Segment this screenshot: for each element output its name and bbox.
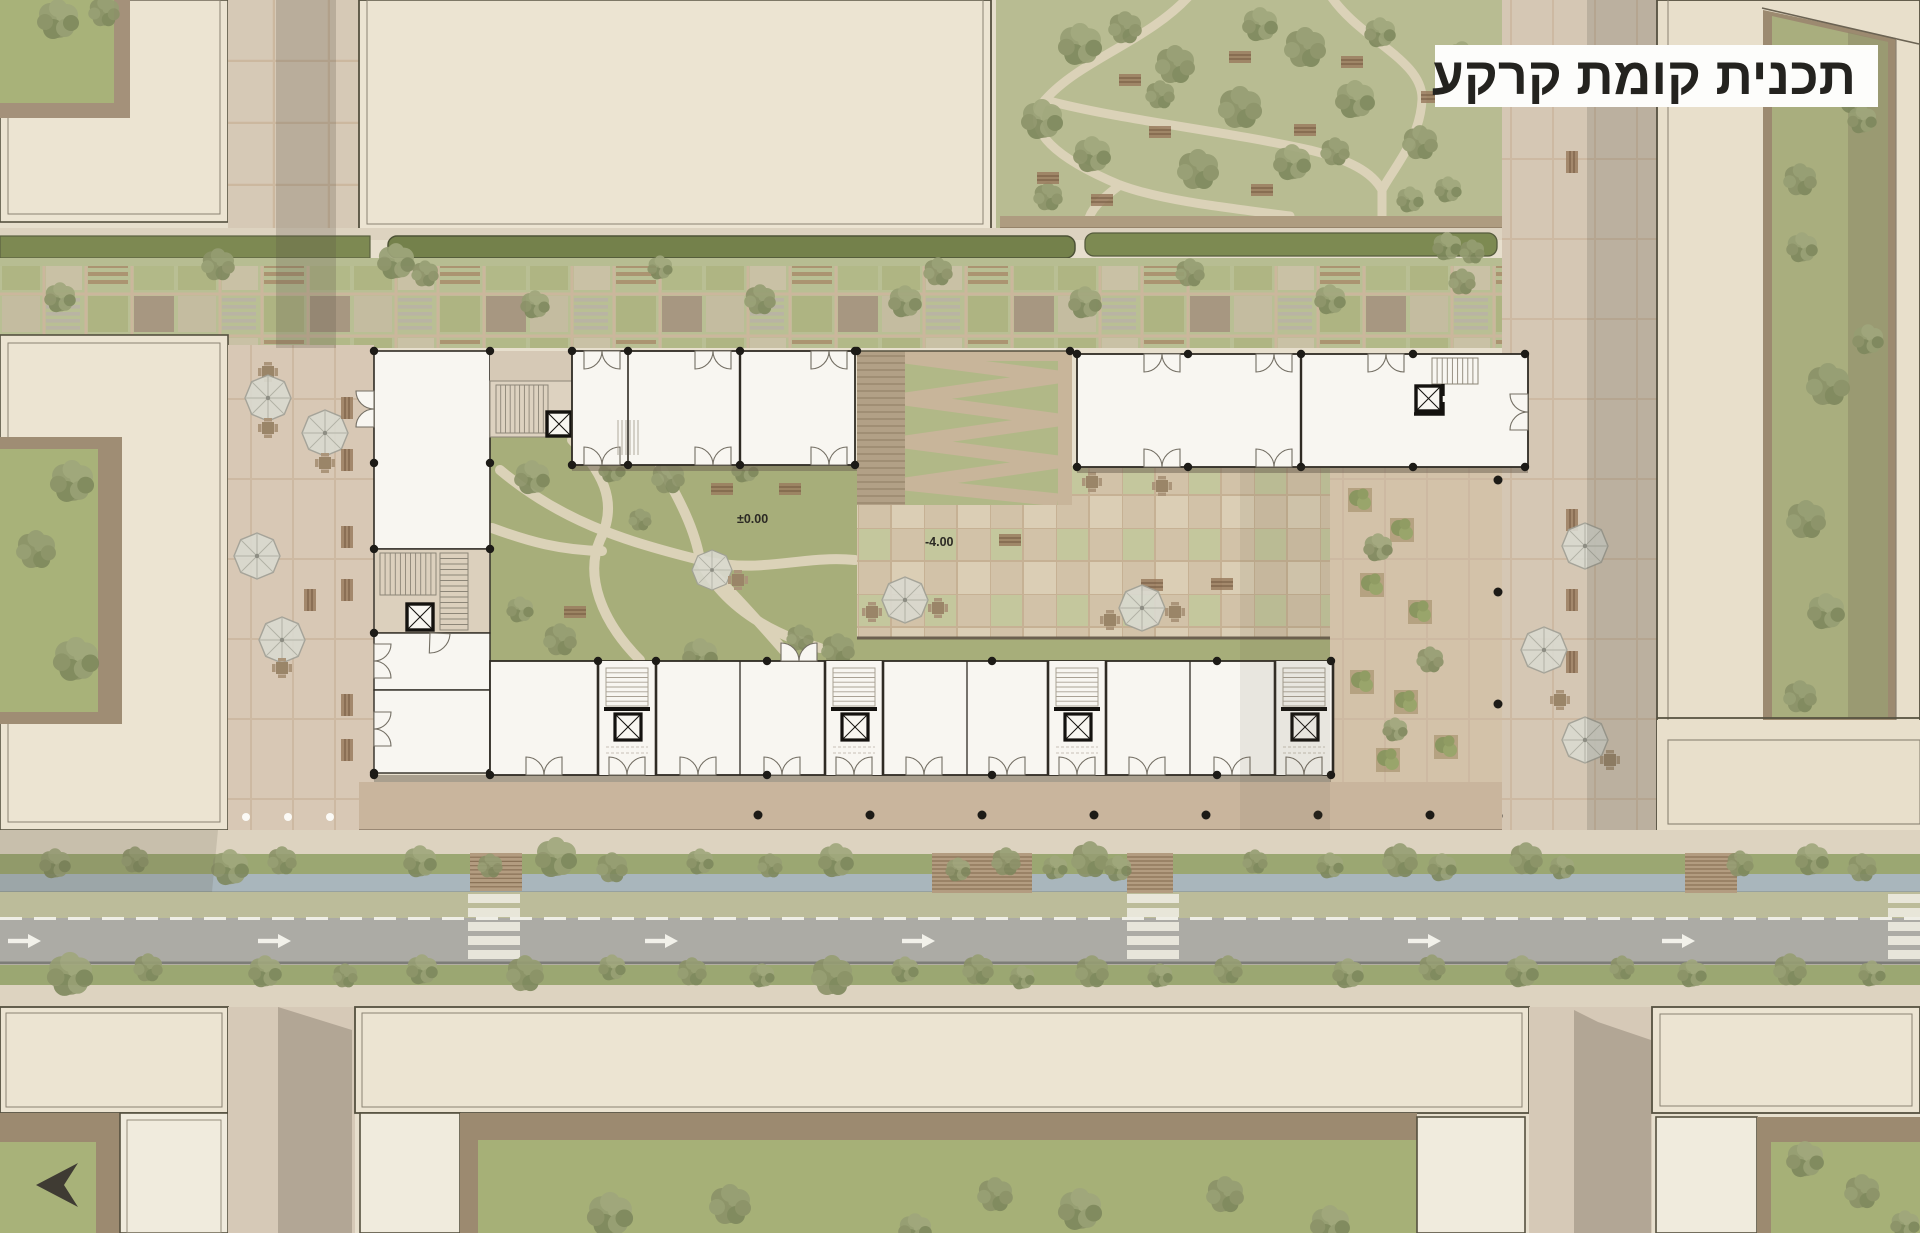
svg-text:±0.00: ±0.00 [737, 512, 768, 526]
svg-text:תכנית קומת קרקע: תכנית קומת קרקע [1432, 48, 1856, 106]
svg-text:-4.00: -4.00 [925, 535, 954, 549]
